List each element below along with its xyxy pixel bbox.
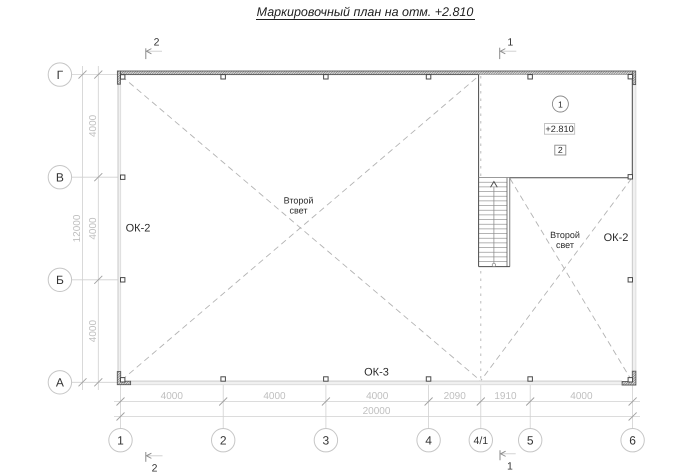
svg-text:4: 4: [425, 433, 432, 447]
svg-text:12000: 12000: [72, 214, 83, 242]
svg-text:4000: 4000: [161, 391, 184, 402]
svg-text:4000: 4000: [88, 114, 99, 137]
svg-text:Б: Б: [56, 273, 64, 287]
svg-text:А: А: [56, 376, 64, 390]
svg-text:ОК-2: ОК-2: [126, 223, 151, 235]
svg-text:Второй: Второй: [550, 230, 580, 240]
svg-text:1: 1: [558, 99, 563, 109]
svg-text:В: В: [56, 170, 64, 184]
svg-text:20000: 20000: [363, 406, 391, 417]
svg-text:1: 1: [117, 433, 124, 447]
svg-text:Маркировочный план на отм. +2.: Маркировочный план на отм. +2.810: [257, 5, 474, 19]
svg-text:2: 2: [558, 145, 563, 155]
svg-text:ОК-3: ОК-3: [364, 366, 389, 378]
svg-text:4000: 4000: [88, 217, 99, 240]
svg-text:6: 6: [629, 433, 636, 447]
svg-text:1: 1: [507, 36, 513, 48]
svg-text:2: 2: [152, 463, 158, 474]
svg-text:свет: свет: [289, 206, 307, 216]
svg-text:1: 1: [507, 461, 513, 473]
svg-text:4000: 4000: [366, 391, 389, 402]
svg-text:свет: свет: [556, 240, 574, 250]
svg-text:2: 2: [220, 433, 227, 447]
svg-text:ОК-2: ОК-2: [604, 232, 629, 244]
svg-text:4000: 4000: [88, 320, 99, 343]
svg-text:1910: 1910: [494, 391, 517, 402]
svg-text:2: 2: [154, 37, 160, 49]
svg-text:2090: 2090: [444, 391, 467, 402]
svg-text:Второй: Второй: [284, 196, 314, 206]
svg-text:+2.810: +2.810: [545, 124, 573, 134]
svg-text:4000: 4000: [570, 391, 593, 402]
svg-text:4000: 4000: [263, 391, 286, 402]
svg-text:3: 3: [323, 433, 330, 447]
svg-text:4/1: 4/1: [473, 435, 488, 447]
svg-text:5: 5: [527, 433, 534, 447]
svg-text:Г: Г: [57, 68, 64, 82]
